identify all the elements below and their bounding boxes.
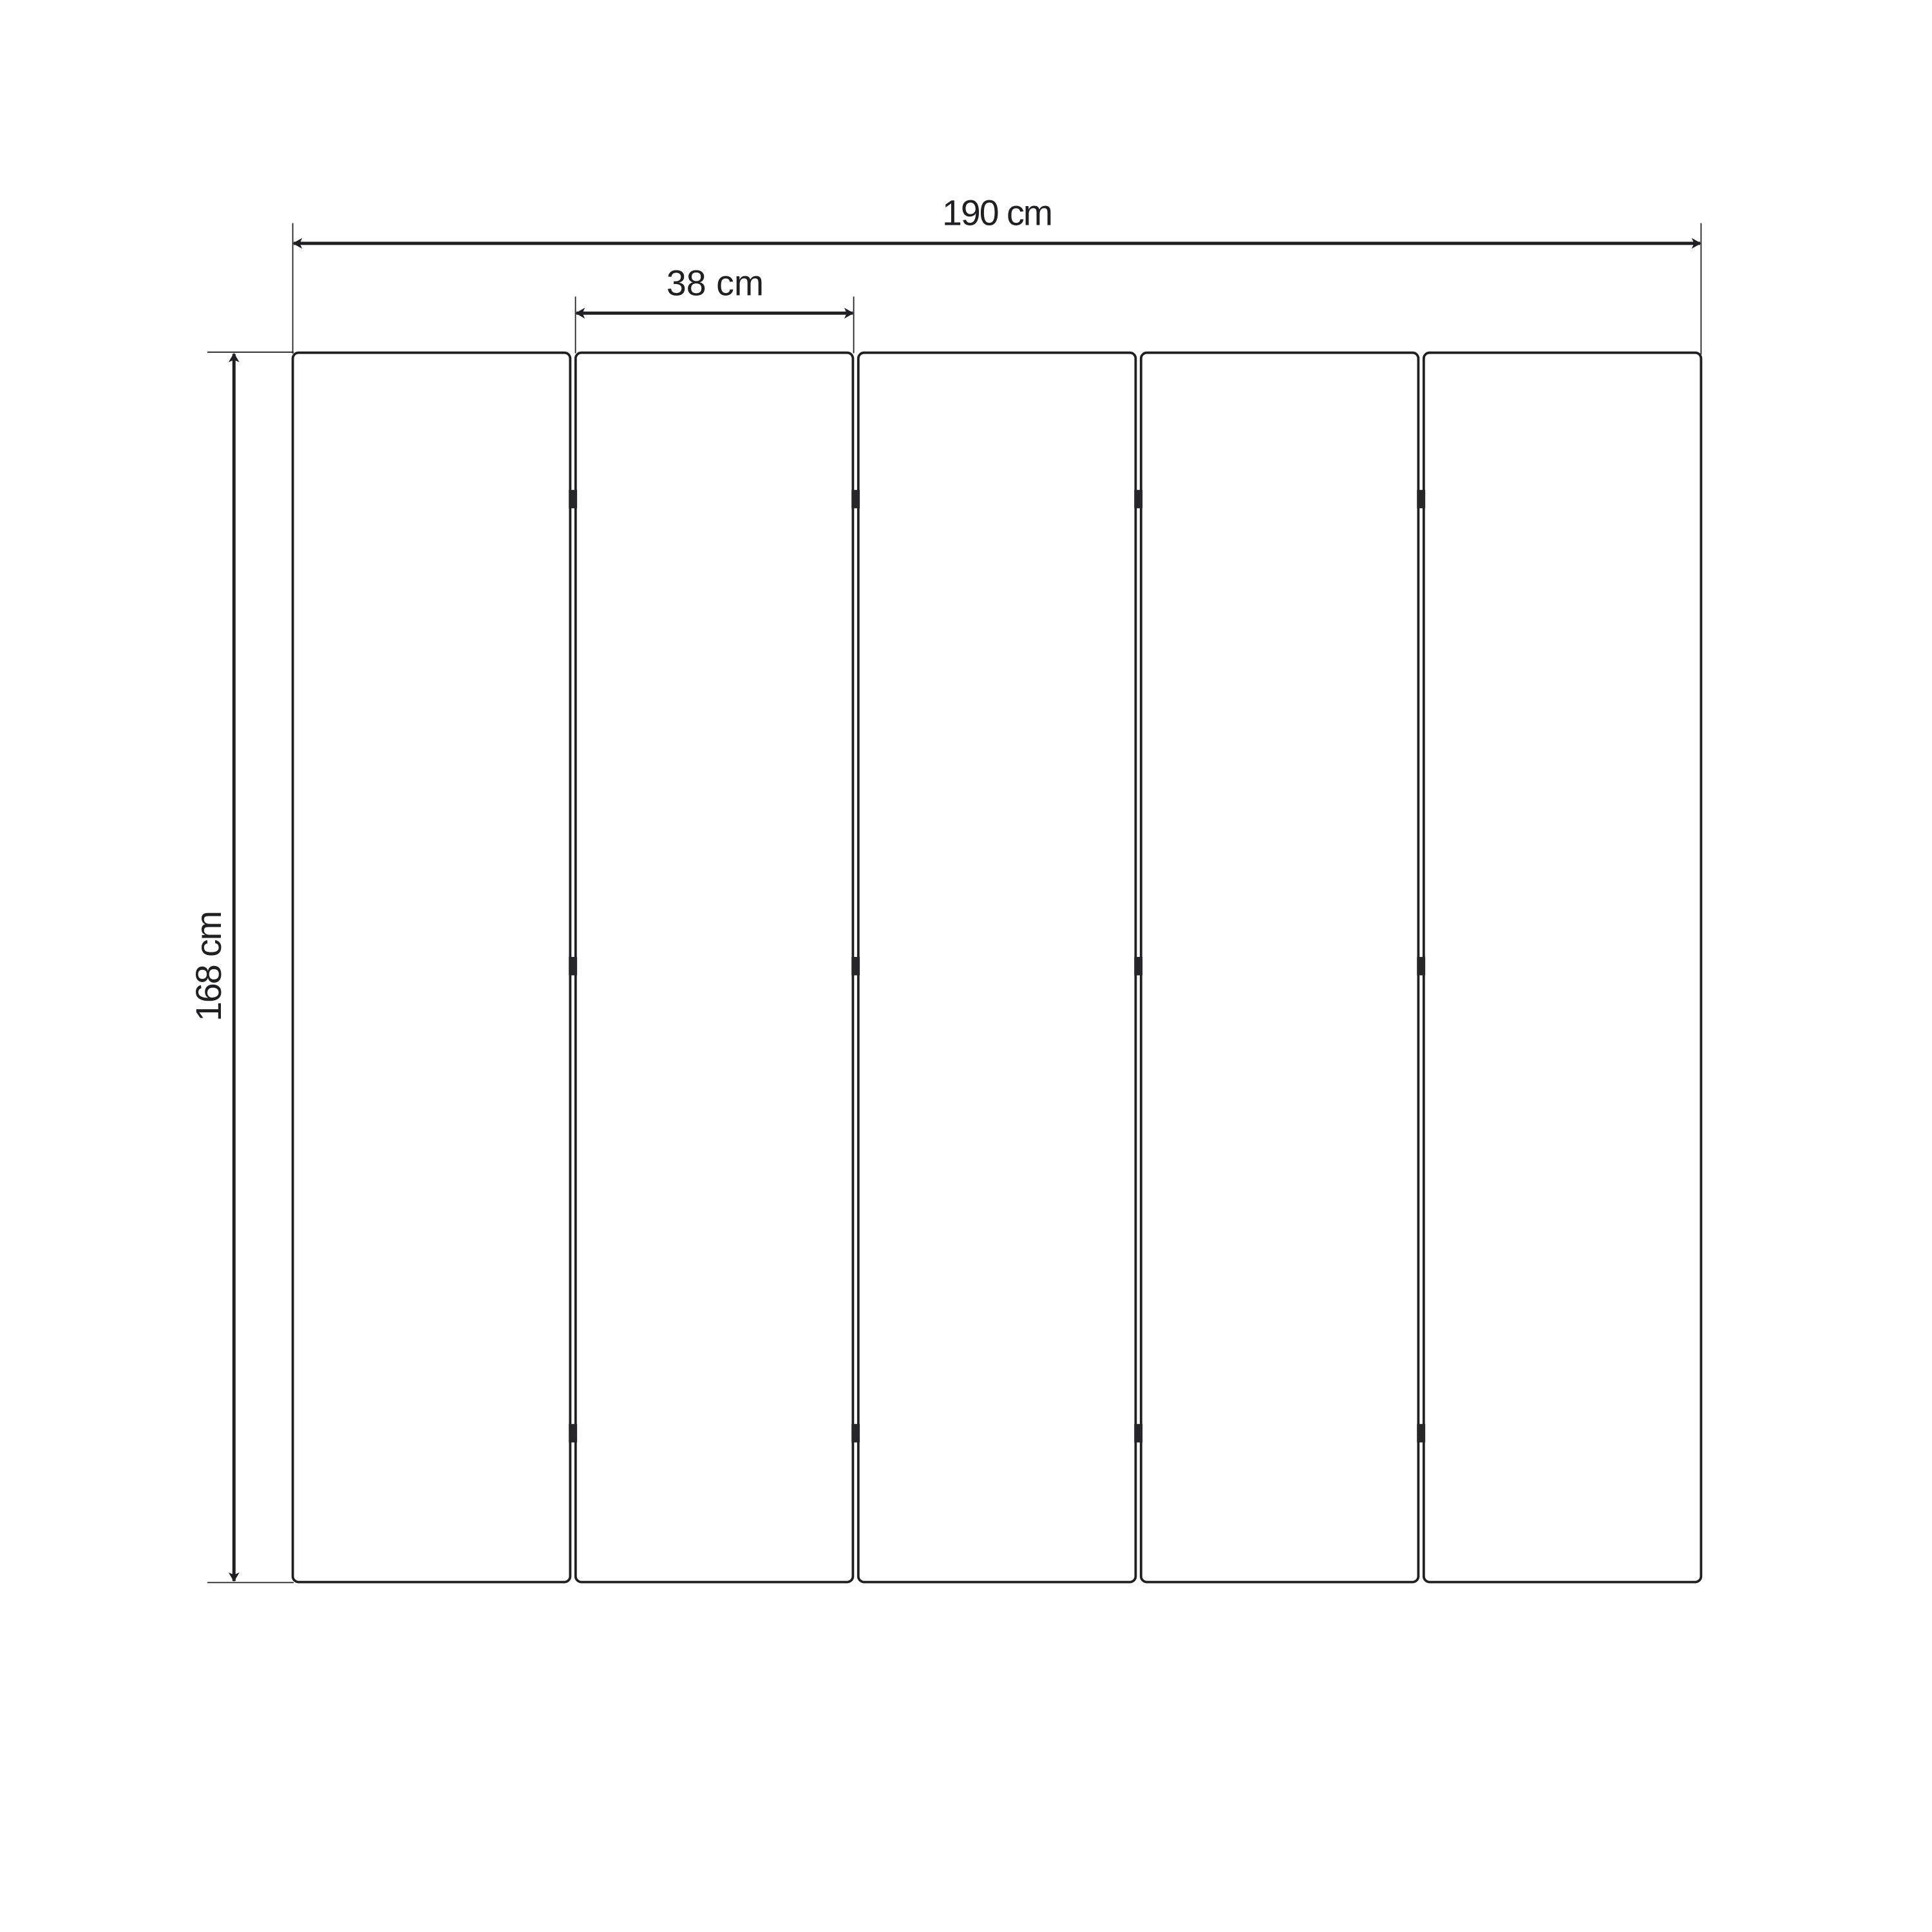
svg-text:168 cm: 168 cm [189, 912, 229, 1021]
svg-text:190 cm: 190 cm [942, 193, 1052, 233]
svg-text:38 cm: 38 cm [667, 263, 764, 303]
